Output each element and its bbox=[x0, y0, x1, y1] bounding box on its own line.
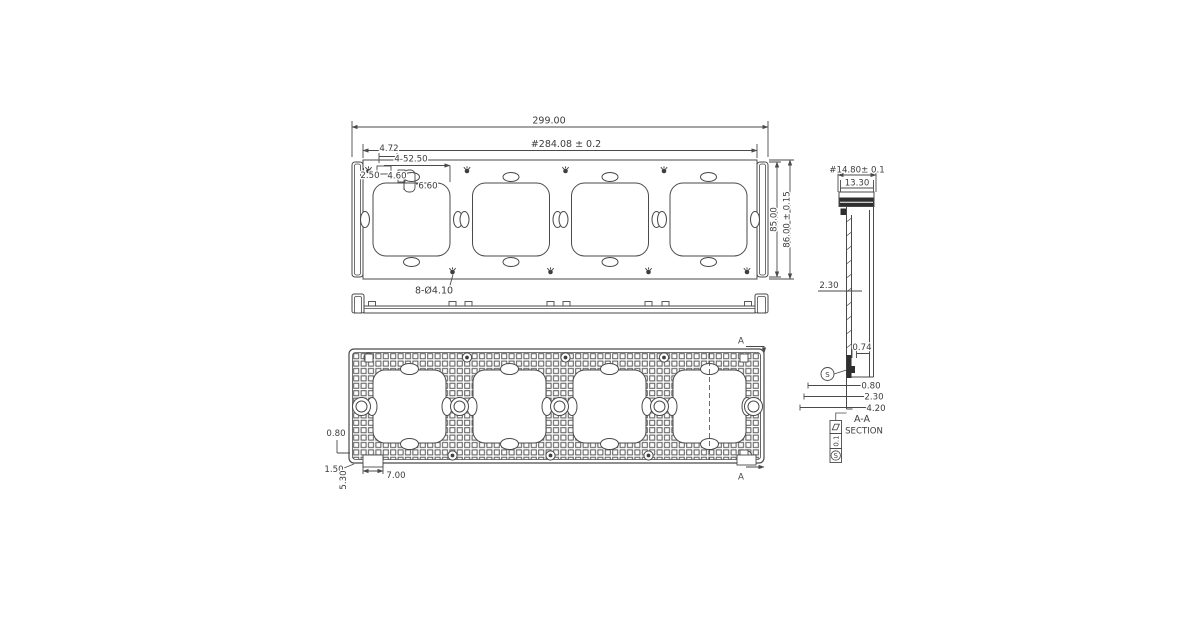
dim-height-outer: 86.00 ± 0.15 bbox=[783, 191, 793, 247]
dim-tab-offset: 4.72 bbox=[379, 144, 398, 154]
screw-hole-icon bbox=[562, 166, 568, 173]
tolerance-datum: S bbox=[834, 452, 839, 460]
dim-notch-width: 4.60 bbox=[387, 172, 406, 182]
section-subtitle: SECTION bbox=[845, 427, 883, 437]
boss-icon bbox=[551, 398, 569, 416]
front-opening-1 bbox=[361, 173, 463, 267]
screw-hole-icon bbox=[561, 353, 570, 362]
back-opening-1 bbox=[367, 364, 452, 450]
boss-icon bbox=[451, 398, 469, 416]
engineering-drawing: 299.00 #284.08 ± 0.2 4.72 2.50 4-52.50 4… bbox=[0, 0, 1200, 630]
hole-callout: 8-Ø4.10 bbox=[415, 286, 453, 297]
corner-foot bbox=[363, 455, 383, 467]
dim-hole-edge-offset: 2.50 bbox=[360, 171, 379, 181]
dim-step-depth: 0.74 bbox=[852, 343, 871, 353]
dim-notch-depth: 6.60 bbox=[418, 182, 437, 192]
back-opening-3 bbox=[567, 364, 652, 450]
section-title: A-A bbox=[854, 414, 871, 425]
dim-base-2: 2.30 bbox=[864, 393, 883, 403]
dim-base-1: 0.80 bbox=[861, 382, 880, 392]
flatness-icon bbox=[832, 424, 839, 430]
front-view bbox=[352, 160, 768, 279]
section-label-top: A bbox=[738, 337, 744, 347]
boss-icon bbox=[353, 398, 371, 416]
back-opening-2 bbox=[467, 364, 552, 450]
bottom-edge-view bbox=[352, 294, 768, 313]
dim-overall-width: 299.00 bbox=[532, 116, 565, 127]
drawing-canvas: 299.00 #284.08 ± 0.2 4.72 2.50 4-52.50 4… bbox=[0, 0, 1200, 630]
mounting-tabs bbox=[369, 302, 752, 307]
front-opening-3 bbox=[559, 173, 661, 267]
dim-rim-width: 13.30 bbox=[845, 179, 870, 189]
screw-hole-icon bbox=[464, 166, 470, 173]
screw-hole-icon bbox=[462, 353, 471, 362]
dim-height-inner: 85.00 bbox=[770, 207, 780, 232]
datum-label: S bbox=[825, 371, 830, 379]
front-opening-2 bbox=[460, 173, 562, 267]
section-label-bottom: A bbox=[738, 473, 744, 483]
screw-hole-icon bbox=[547, 267, 553, 274]
dim-depth-overall: #14.80± 0.1 bbox=[829, 166, 884, 176]
screw-hole-icon bbox=[744, 267, 750, 274]
dim-base-3: 4.20 bbox=[866, 404, 885, 414]
tolerance-value: 0.1 bbox=[832, 435, 840, 446]
dim-wall-thickness: 2.30 bbox=[819, 281, 838, 291]
screw-hole-icon bbox=[448, 451, 457, 460]
boss-icon bbox=[745, 398, 763, 416]
corner-foot bbox=[737, 455, 756, 465]
screw-hole-icon bbox=[449, 267, 455, 274]
dim-mount-width: #284.08 ± 0.2 bbox=[531, 139, 601, 150]
dim-foot-width: 7.00 bbox=[386, 471, 405, 481]
dim-foot-height: 5.30 bbox=[339, 470, 349, 489]
screw-hole-icon bbox=[659, 353, 668, 362]
boss-icon bbox=[651, 398, 669, 416]
screw-hole-icon bbox=[661, 166, 667, 173]
screw-hole-icon bbox=[645, 267, 651, 274]
screw-hole-icon bbox=[644, 451, 653, 460]
dim-opening-size: 4-52.50 bbox=[394, 155, 427, 165]
front-opening-4 bbox=[658, 173, 760, 267]
back-view bbox=[349, 349, 764, 467]
dim-rib: 0.80 bbox=[326, 429, 345, 439]
screw-hole-icon bbox=[546, 451, 555, 460]
front-right-endcap-inner bbox=[760, 164, 766, 275]
